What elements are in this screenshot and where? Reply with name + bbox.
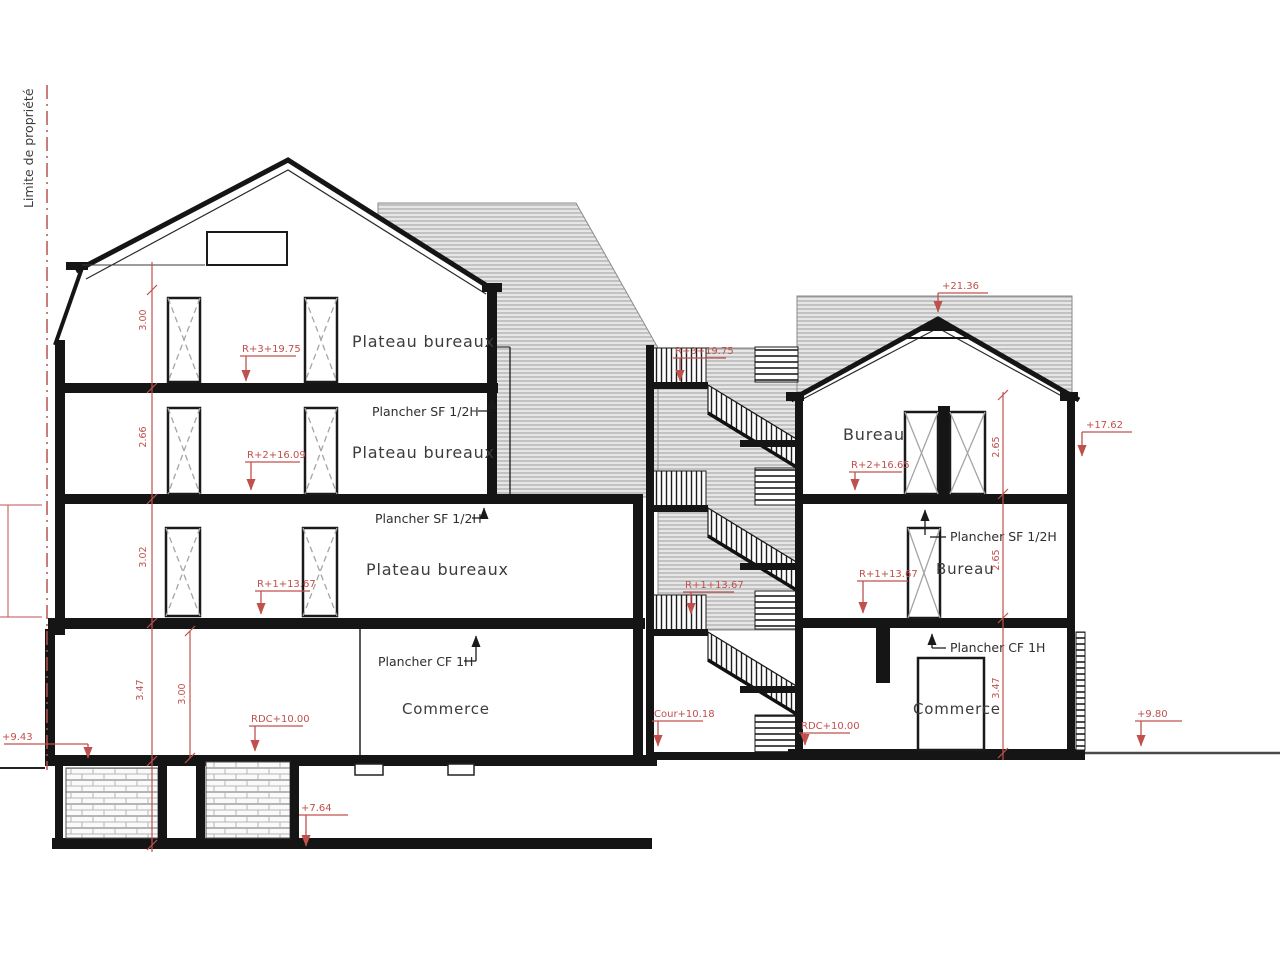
dim-right-0: 2.65: [991, 436, 1002, 457]
dim-ground-left: 3.00: [177, 683, 188, 704]
dim-right-1: 2.65: [991, 549, 1002, 570]
building-section-drawing: Plateau bureaux Plancher SF 1/2H Plateau…: [0, 0, 1280, 960]
level-terrain-left: +9.43: [2, 732, 33, 743]
section-drawing-canvas: Plateau bureaux Plancher SF 1/2H Plateau…: [0, 0, 1280, 960]
level-r3-left: R+3+19.75: [242, 344, 301, 355]
level-basement: +7.64: [301, 803, 332, 814]
level-r1-left: R+1+13.67: [257, 579, 316, 590]
basement: [66, 762, 474, 840]
label-room-bureau-r2: Bureau: [843, 425, 905, 444]
level-r1-right: R+1+13.67: [859, 569, 918, 580]
level-rdc-left: RDC+10.00: [251, 714, 310, 725]
dim-left-0: 3.00: [138, 309, 149, 330]
level-r2-left: R+2+16.09: [247, 450, 306, 461]
level-ridge-right: +21.36: [942, 281, 979, 292]
label-room-commerce-left: Commerce: [402, 700, 490, 718]
dim-right-2: 3.47: [991, 677, 1002, 698]
label-room-commerce-right: Commerce: [913, 700, 1001, 718]
label-room-plateau-r3: Plateau bureaux: [352, 332, 495, 351]
level-rdc-right: RDC+10.00: [801, 721, 860, 732]
dim-left-1: 2.66: [138, 426, 149, 447]
level-terrain-right: +9.80: [1137, 709, 1168, 720]
label-room-bureau-r1: Bureau: [936, 560, 994, 578]
label-slab-sf-top-left: Plancher SF 1/2H: [372, 404, 479, 419]
level-r2-right: R+2+16.65: [851, 460, 910, 471]
label-room-plateau-r2: Plateau bureaux: [352, 443, 495, 462]
property-limit: Limite de propriété: [21, 85, 47, 770]
level-r1-stair: R+1+13.67: [685, 580, 744, 591]
property-limit-label: Limite de propriété: [21, 88, 36, 208]
level-r3-stair: R+3+19.75: [675, 346, 734, 357]
dim-left-3: 3.47: [135, 679, 146, 700]
label-room-plateau-r1: Plateau bureaux: [366, 560, 509, 579]
dim-left-2: 3.02: [138, 546, 149, 567]
label-slab-cf-left: Plancher CF 1H: [378, 654, 473, 669]
label-slab-cf-right: Plancher CF 1H: [950, 640, 1045, 655]
level-eaves-right: +17.62: [1086, 420, 1123, 431]
level-cour: Cour+10.18: [654, 709, 715, 720]
label-slab-sf-mid-left: Plancher SF 1/2H: [375, 511, 482, 526]
